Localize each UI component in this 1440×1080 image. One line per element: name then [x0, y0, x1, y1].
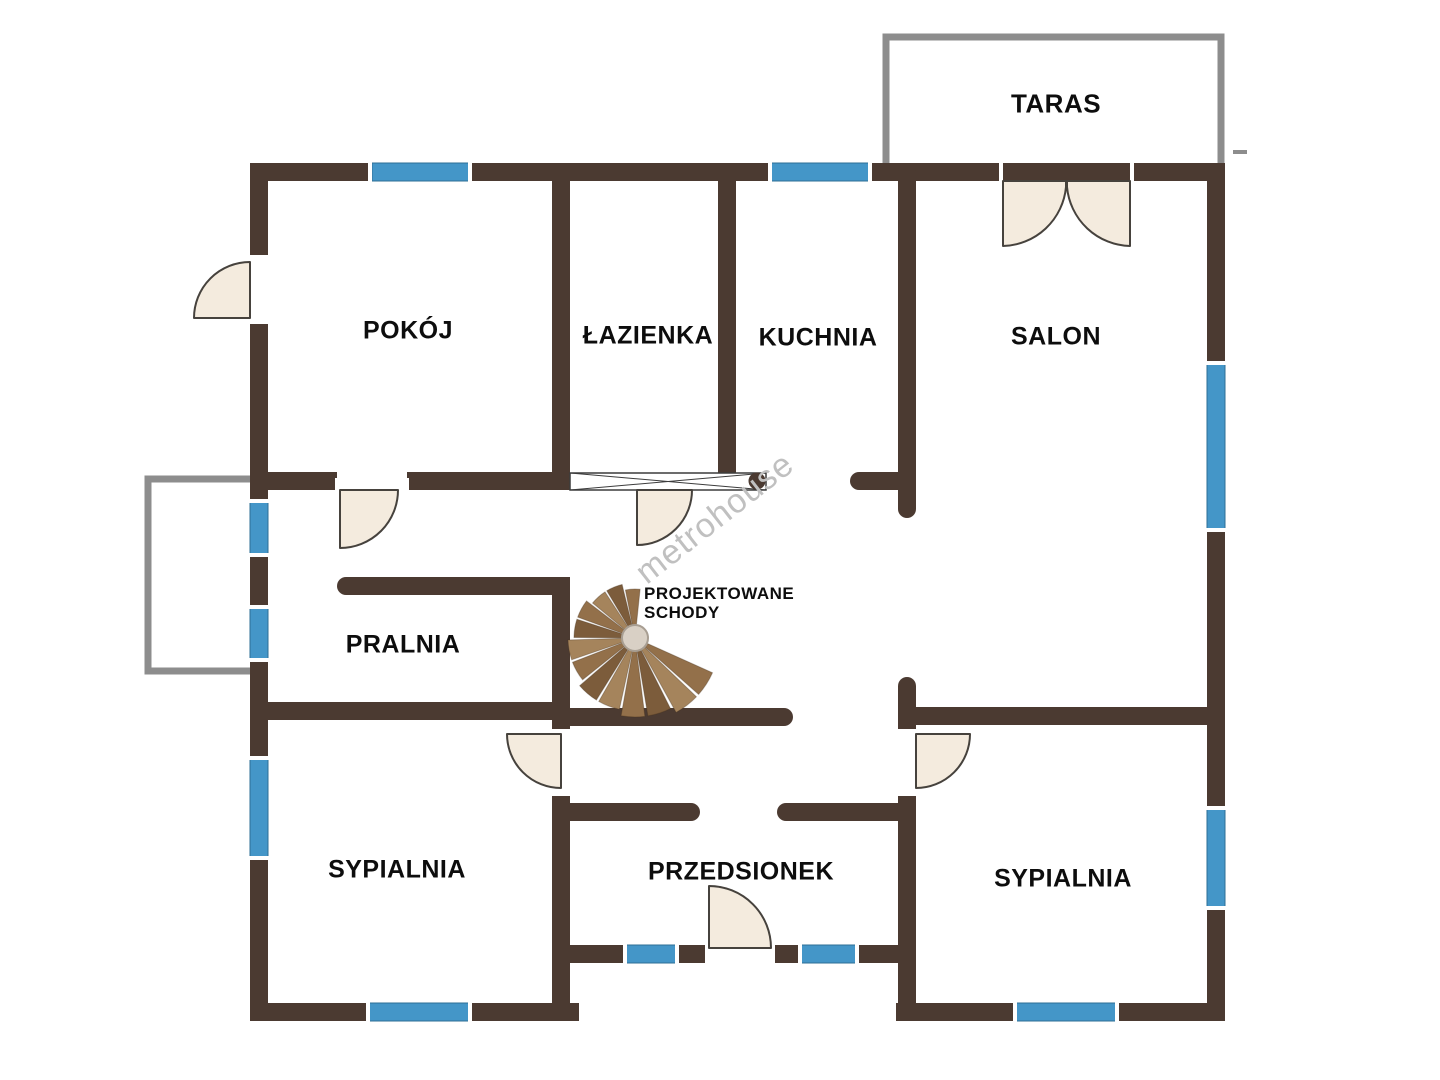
- jamb-tick: [1205, 528, 1229, 532]
- window: [250, 501, 268, 555]
- jamb-tick: [895, 729, 919, 733]
- jamb-tick: [247, 756, 271, 760]
- window: [1207, 808, 1225, 908]
- window: [250, 758, 268, 858]
- room-label-pralnia: PRALNIA: [346, 631, 461, 660]
- room-label-taras: TARAS: [1011, 89, 1101, 120]
- jamb-tick: [895, 792, 919, 796]
- room-label-lazienka: ŁAZIENKA: [583, 322, 713, 351]
- room-label-salon: SALON: [1011, 323, 1101, 352]
- jamb-tick: [1205, 806, 1229, 810]
- stairs-annotation: PROJEKTOWANE SCHODY: [644, 584, 794, 622]
- jamb-tick: [768, 160, 772, 184]
- room-label-sypialnia-left: SYPIALNIA: [328, 856, 466, 885]
- jamb-tick: [798, 942, 802, 966]
- jamb-tick: [366, 1000, 370, 1024]
- jamb-tick: [247, 320, 271, 324]
- jamb-tick: [1013, 1000, 1017, 1024]
- jamb-tick: [855, 942, 859, 966]
- balcony-outline: [148, 479, 252, 671]
- jamb-tick: [1115, 1000, 1119, 1024]
- terrace-rail-tick: [1233, 150, 1247, 154]
- room-label-kuchnia: KUCHNIA: [759, 324, 878, 353]
- stairs-hub: [622, 625, 648, 651]
- window: [1015, 1003, 1117, 1021]
- stairs-annotation-line2: SCHODY: [644, 603, 794, 622]
- jamb-tick: [868, 160, 872, 184]
- floor-plan: TARAS POKÓJ ŁAZIENKA KUCHNIA SALON PRALN…: [0, 0, 1440, 1080]
- jamb-tick: [368, 160, 372, 184]
- stairs-annotation-line1: PROJEKTOWANE: [644, 584, 794, 603]
- room-label-pokoj: POKÓJ: [363, 317, 453, 346]
- jamb-tick: [247, 255, 271, 259]
- jamb-tick: [247, 605, 271, 609]
- jamb-tick: [549, 792, 573, 796]
- jamb-tick: [405, 478, 409, 502]
- window: [1207, 363, 1225, 530]
- door-pokoj-exterior: [194, 262, 250, 318]
- jamb-tick: [247, 856, 271, 860]
- jamb-tick: [247, 658, 271, 662]
- window: [800, 945, 857, 963]
- window: [368, 1003, 470, 1021]
- jamb-tick: [247, 499, 271, 503]
- room-label-przedsionek: PRZEDSIONEK: [648, 858, 834, 887]
- window: [625, 945, 677, 963]
- jamb-tick: [1205, 906, 1229, 910]
- door-taras-right-leaf: [1067, 181, 1130, 246]
- door-taras-left-leaf: [1003, 181, 1066, 246]
- window: [770, 163, 870, 181]
- jamb-tick: [335, 478, 339, 502]
- door-pralnia: [340, 490, 398, 548]
- window: [372, 163, 470, 181]
- jamb-tick: [468, 160, 472, 184]
- jamb-tick: [675, 942, 679, 966]
- jamb-tick: [549, 729, 573, 733]
- door-sypialnia-right: [916, 734, 970, 788]
- room-label-sypialnia-right: SYPIALNIA: [994, 865, 1132, 894]
- jamb-tick: [623, 942, 627, 966]
- jamb-tick: [1205, 361, 1229, 365]
- door-sypialnia-left: [507, 734, 561, 788]
- jamb-tick: [247, 553, 271, 557]
- window: [250, 607, 268, 660]
- jamb-tick: [468, 1000, 472, 1024]
- door-entrance: [709, 886, 771, 948]
- floor-plan-drawing: [0, 0, 1440, 1080]
